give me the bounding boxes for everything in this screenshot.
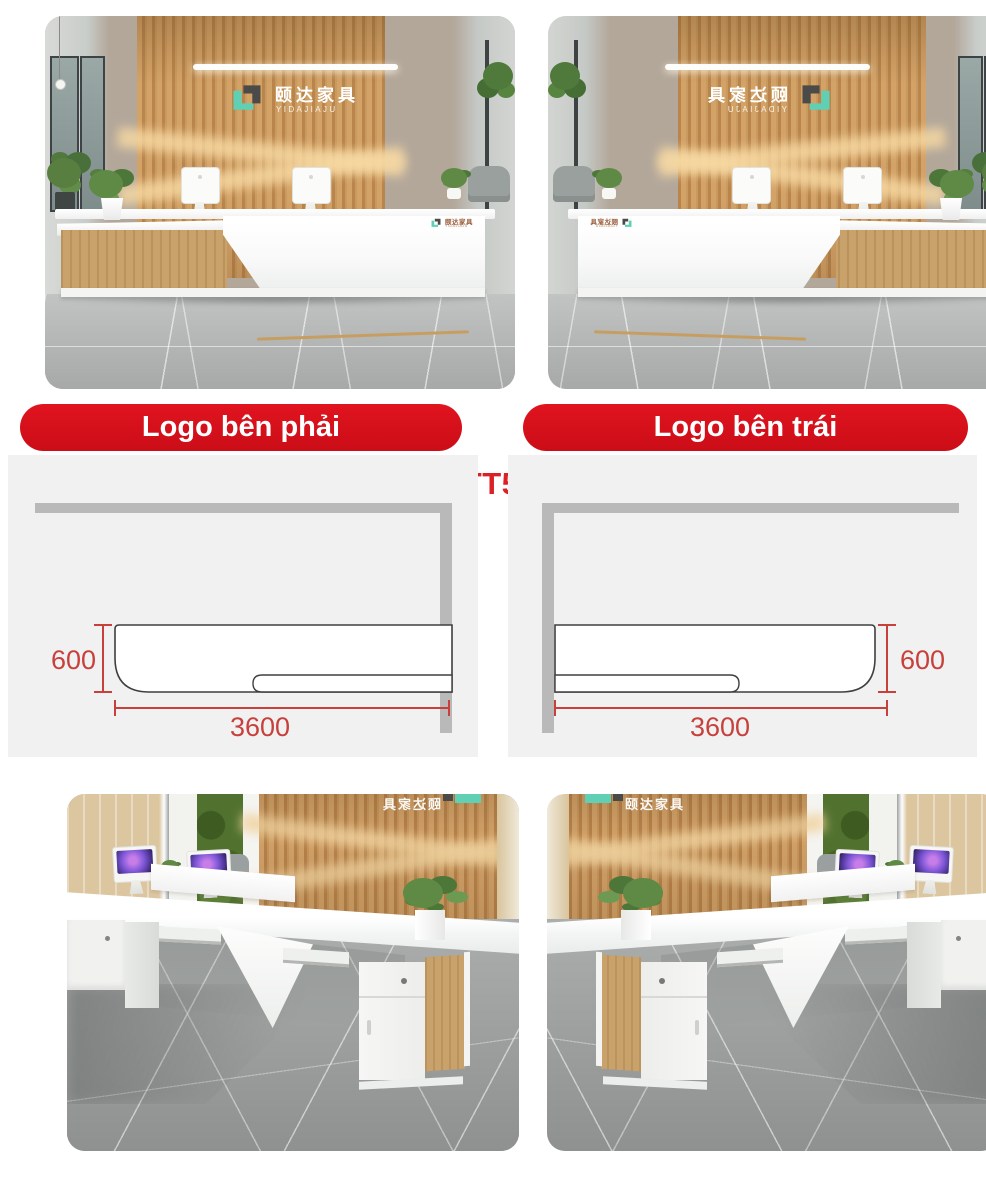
left-drawer-unit — [941, 920, 986, 990]
white-pot — [100, 198, 124, 220]
plant — [483, 62, 513, 90]
wall-side-bar — [440, 503, 452, 733]
drawer-divider — [359, 996, 425, 998]
wall-logo-latin: YIDAJIAJU — [276, 105, 338, 114]
support-panel — [125, 922, 159, 1008]
plan-diagram-logo-left: 600 3600 — [508, 455, 977, 757]
plant — [596, 168, 622, 188]
door-handle — [695, 1020, 699, 1035]
tile-floor — [45, 294, 515, 389]
side-wall-strip — [497, 794, 519, 919]
pendant-lamp-stem — [59, 16, 60, 80]
desk-base-strip — [578, 288, 986, 297]
brand-logo-fragment — [455, 794, 481, 803]
cabinet-wood-side — [425, 955, 465, 1072]
photo-reception-rear-view: 颐达家具 — [67, 794, 519, 1151]
brand-logo-icon — [430, 217, 442, 229]
monitor-screen — [913, 849, 950, 874]
left-drawer-unit — [67, 920, 125, 990]
brand-logo-fragment — [585, 794, 611, 803]
keyhole — [956, 936, 961, 941]
cabinet-edge-strip — [464, 952, 470, 1066]
wall-logo: 颐达家具 YIDAJIAJU — [228, 78, 378, 126]
monitor-back — [732, 167, 771, 204]
desk-logo-latin: YIDAJIAJU — [595, 224, 618, 228]
white-pot — [447, 188, 461, 199]
support-panel — [907, 922, 941, 1008]
desk-front-logo: 颐达家具 YIDAJIAJU — [579, 216, 633, 233]
desk-logo-latin: YIDAJIAJU — [445, 224, 468, 228]
brand-logo-fragment — [613, 794, 623, 801]
cabinet-edge-strip — [596, 952, 602, 1066]
depth-dimension — [94, 625, 112, 692]
wall-logo-chinese: 颐达家具 — [275, 81, 375, 106]
banner-logo-left: Logo bên trái — [523, 404, 968, 451]
counter-inset-outline — [253, 675, 452, 692]
keyhole — [401, 978, 407, 984]
desk-front-logo: 颐达家具 YIDAJIAJU — [430, 216, 484, 233]
wall-logo-latin: YIDAJIAJU — [725, 105, 787, 114]
monitor-back — [292, 167, 331, 204]
tile-grout-line — [45, 346, 515, 347]
depth-label: 600 — [900, 645, 945, 675]
lounge-chair — [553, 166, 595, 202]
plant — [403, 878, 443, 908]
ceiling-light-bar — [193, 64, 398, 70]
reception-rear-scene: 颐达家具 — [67, 794, 519, 1151]
wall-logo-chinese: 颐达家具 — [688, 81, 788, 106]
wall-top-bar — [542, 503, 959, 513]
monitor-back — [843, 167, 882, 204]
keyboard-tray — [159, 926, 221, 944]
wall-side-bar — [542, 503, 554, 733]
monitor-back — [181, 167, 220, 204]
product-detail-image: 颐达家具 YIDAJIAJU 颐达家具 — [0, 0, 986, 1177]
monitor-screen — [116, 849, 153, 874]
drawer-divider — [641, 996, 707, 998]
brand-logo-icon — [621, 217, 633, 229]
banner-logo-right: Logo bên phải — [20, 404, 462, 451]
low-counter-wood-front — [836, 230, 986, 294]
keyhole — [105, 936, 110, 941]
reception-rear-scene: 颐达家具 — [547, 794, 986, 1151]
brand-logo-fragment — [443, 794, 453, 801]
plant — [47, 158, 81, 188]
wall-top-bar — [35, 503, 452, 513]
reception-showroom-scene: 颐达家具 YIDAJIAJU 颐达家具 — [45, 16, 515, 389]
plant — [441, 168, 467, 188]
counter-inset-outline — [555, 675, 739, 692]
keyhole — [659, 978, 665, 984]
width-label: 3600 — [690, 712, 750, 742]
brand-logo-icon — [228, 80, 266, 116]
plant — [89, 170, 123, 198]
cabinet-wood-side — [601, 955, 641, 1072]
side-wall-strip — [547, 794, 569, 919]
brand-logo-icon — [797, 80, 835, 116]
white-pot — [939, 198, 963, 220]
pendant-lamp — [55, 79, 66, 90]
plant — [940, 170, 974, 198]
white-cube-pot — [415, 910, 445, 940]
desk-base-strip — [61, 288, 485, 297]
photo-reception-front-logo-right: 颐达家具 YIDAJIAJU 颐达家具 — [45, 16, 515, 389]
door-handle — [367, 1020, 371, 1035]
width-label: 3600 — [230, 712, 290, 742]
lounge-chair — [468, 166, 510, 202]
white-cube-pot — [621, 910, 651, 940]
depth-label: 600 — [51, 645, 96, 675]
white-pot — [602, 188, 616, 199]
wall-logo-mirrored: 颐达家具 — [381, 794, 441, 813]
plan-diagram-logo-right: 600 3600 — [8, 455, 478, 757]
tile-floor — [548, 294, 986, 389]
ceiling-light-bar — [665, 64, 870, 70]
photo-reception-front-logo-left: 颐达家具 YIDAJIAJU 颐达家具 — [548, 16, 986, 389]
depth-dimension — [878, 625, 896, 692]
low-counter-wood-front — [61, 230, 227, 294]
plant — [623, 878, 663, 908]
plant — [550, 62, 580, 90]
reception-showroom-scene: 颐达家具 YIDAJIAJU 颐达家具 — [548, 16, 986, 389]
window-frame — [50, 56, 79, 212]
tile-grout-line — [548, 346, 986, 347]
wall-logo: 颐达家具 YIDAJIAJU — [685, 78, 835, 126]
photo-reception-rear-view-mirrored: 颐达家具 — [547, 794, 986, 1151]
wall-logo-mirrored: 颐达家具 — [625, 794, 685, 813]
